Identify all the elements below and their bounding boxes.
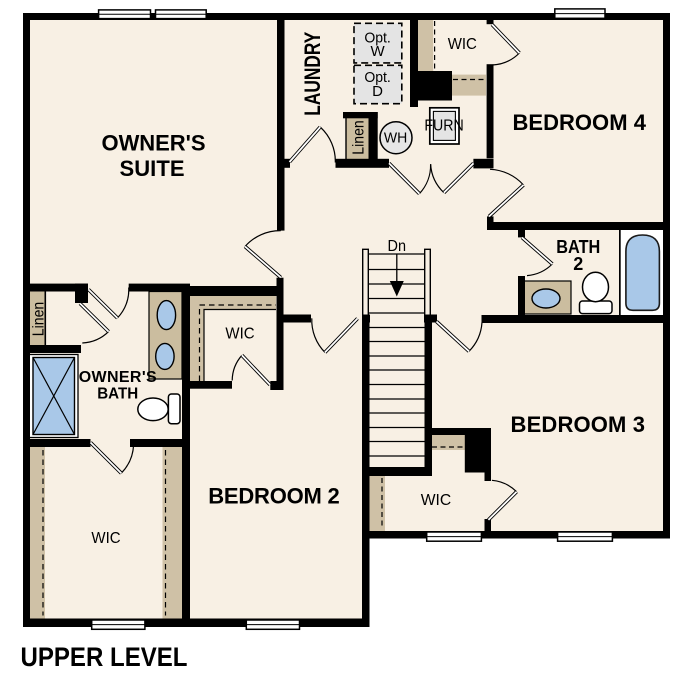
svg-text:FURN: FURN	[424, 118, 463, 135]
svg-text:W: W	[371, 43, 386, 60]
svg-text:BEDROOM 2: BEDROOM 2	[208, 484, 340, 509]
svg-text:WIC: WIC	[225, 326, 254, 343]
svg-text:WIC: WIC	[421, 492, 452, 509]
svg-text:WH: WH	[384, 130, 407, 147]
svg-text:UPPER LEVEL: UPPER LEVEL	[21, 642, 188, 672]
svg-text:2: 2	[573, 254, 583, 274]
svg-text:D: D	[372, 83, 383, 100]
svg-text:OWNER'S: OWNER'S	[79, 369, 157, 386]
svg-text:Linen: Linen	[30, 302, 47, 337]
svg-text:SUITE: SUITE	[120, 156, 185, 181]
svg-text:Linen: Linen	[351, 120, 368, 155]
svg-text:BEDROOM 4: BEDROOM 4	[512, 110, 646, 135]
svg-text:LAUNDRY: LAUNDRY	[300, 31, 325, 115]
svg-text:WIC: WIC	[91, 530, 120, 547]
svg-text:OWNER'S: OWNER'S	[102, 131, 206, 156]
svg-text:WIC: WIC	[448, 36, 477, 53]
svg-text:BEDROOM 3: BEDROOM 3	[511, 412, 646, 437]
svg-text:Dn: Dn	[388, 238, 407, 255]
svg-text:BATH: BATH	[97, 386, 138, 403]
